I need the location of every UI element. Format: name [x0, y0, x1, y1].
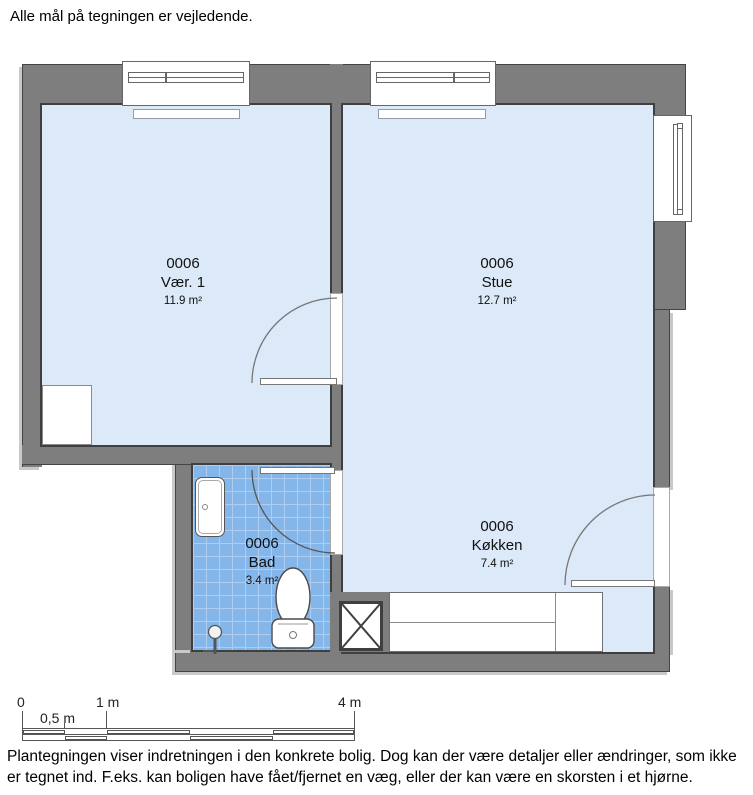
bottom-disclaimer-line1: Plantegningen viser indretningen i den k…: [7, 746, 737, 767]
kitchen-counter: [389, 592, 603, 652]
door-opening-entry: [653, 487, 670, 587]
bottom-disclaimer: Plantegningen viser indretningen i den k…: [7, 746, 737, 788]
room-name: Bad: [202, 553, 322, 572]
wall-bath-top: [22, 445, 343, 465]
wall-left: [22, 64, 42, 467]
top-disclaimer: Alle mål på tegningen er vejledende.: [10, 8, 253, 25]
label-room-stue: 0006 Stue 12.7 m²: [437, 254, 557, 311]
door-leaf-entry: [571, 580, 655, 587]
scale-label-4m: 4 m: [338, 694, 361, 710]
radiator-stue: [378, 109, 486, 119]
room-area: 11.9 m²: [123, 292, 243, 311]
room-area: 3.4 m²: [202, 572, 322, 591]
window-right-side: [653, 115, 692, 222]
scale-tick-4m: [354, 711, 355, 728]
scale-label-1m: 1 m: [96, 694, 119, 710]
wall-top-b: [247, 64, 370, 105]
scale-stripe: [65, 736, 107, 740]
bottom-disclaimer-line2: er tegnet ind. F.eks. kan boligen have f…: [7, 767, 737, 788]
window-top-right: [370, 61, 496, 106]
scale-tick-0: [22, 711, 23, 728]
scale-tick-1m: [106, 711, 107, 728]
bath-sink: [195, 477, 225, 537]
wall-right-mid: [653, 310, 670, 487]
window-top-left: [122, 61, 250, 106]
scale-label-05m: 0,5 m: [40, 710, 75, 726]
scale-stripe: [190, 736, 273, 740]
wardrobe-vaer1: [42, 385, 92, 445]
room-id: 0006: [437, 254, 557, 273]
wall-top-c: [495, 64, 686, 105]
label-room-koekken: 0006 Køkken 7.4 m²: [437, 517, 557, 574]
radiator-vaer1: [133, 109, 240, 119]
room-id: 0006: [202, 534, 322, 553]
room-id: 0006: [123, 254, 243, 273]
door-opening-vaer1: [330, 293, 343, 385]
scale-bar-ruler: [22, 728, 355, 741]
room-name: Køkken: [437, 536, 557, 555]
door-leaf-vaer1: [260, 378, 337, 385]
room-id: 0006: [437, 517, 557, 536]
scale-label-0: 0: [17, 694, 25, 710]
floor-plan: Alle mål på tegningen er vejledende.: [0, 0, 753, 795]
scale-stripe: [23, 730, 65, 734]
room-area: 12.7 m²: [437, 292, 557, 311]
label-room-vaer1: 0006 Vær. 1 11.9 m²: [123, 254, 243, 311]
wall-top-a: [22, 64, 125, 105]
scale-stripe: [273, 730, 354, 734]
door-opening-bad: [330, 470, 343, 555]
room-area: 7.4 m²: [437, 555, 557, 574]
shaft-x-box: [339, 601, 383, 651]
label-room-bad: 0006 Bad 3.4 m²: [202, 534, 322, 591]
room-name: Vær. 1: [123, 273, 243, 292]
scale-stripe: [107, 730, 190, 734]
door-leaf-bad: [260, 467, 335, 474]
wall-right-lower: [653, 587, 670, 652]
room-name: Stue: [437, 273, 557, 292]
